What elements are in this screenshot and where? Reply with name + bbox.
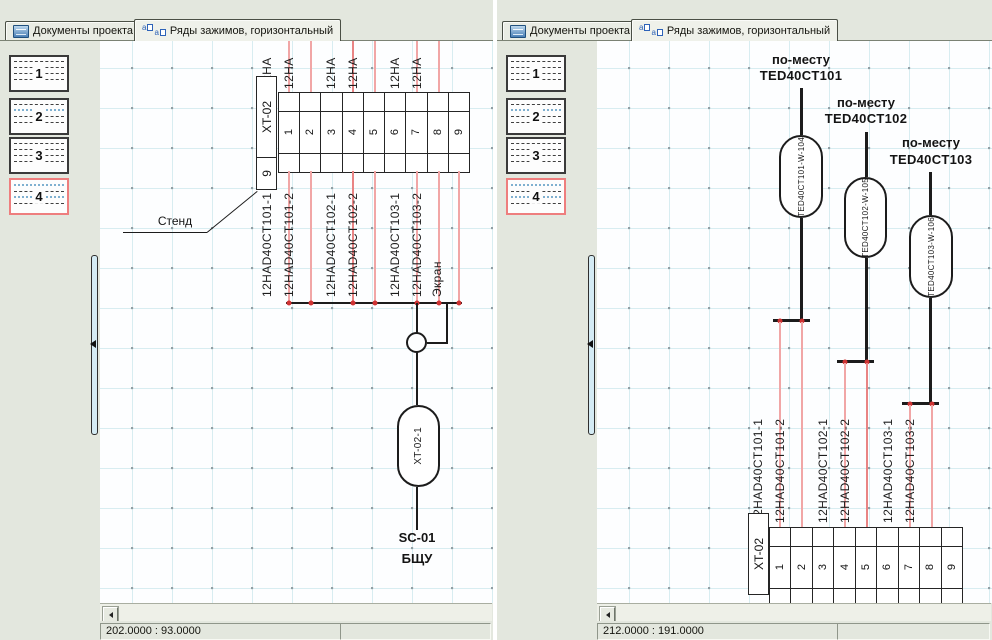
- page-number: 3: [529, 147, 542, 162]
- page-thumbnail-3[interactable]: 3: [9, 137, 69, 174]
- wire-label[interactable]: 12HAD40CT103-1: [882, 419, 895, 523]
- junction-dot: [351, 301, 356, 306]
- leader-line: [123, 232, 207, 233]
- status-bar: 212.0000 : 191.0000: [597, 621, 992, 640]
- link-line[interactable]: [416, 303, 418, 405]
- wire-label[interactable]: 12HAD40CT103-2: [904, 419, 917, 523]
- leader-line: [207, 191, 258, 233]
- editor-panel-left: Документы проекта aa Ряды зажимов, гориз…: [0, 0, 493, 640]
- terminal-block-label[interactable]: XT-02: [748, 513, 769, 595]
- cable-marker[interactable]: TED40CT102-W-105: [844, 177, 887, 258]
- terminal-wire[interactable]: [310, 171, 312, 303]
- tab-label: Ряды зажимов, горизонтальный: [667, 25, 830, 37]
- page-thumbnail-3[interactable]: 3: [506, 137, 566, 174]
- sensor-location[interactable]: по-месту: [755, 52, 847, 67]
- junction-dot: [437, 301, 442, 306]
- wire-label[interactable]: 12HAD40CT102-1: [817, 419, 830, 523]
- tab-terminal-rows[interactable]: aa Ряды зажимов, горизонтальный: [631, 19, 838, 41]
- cable-line[interactable]: [865, 258, 868, 363]
- scroll-left-button[interactable]: [600, 607, 615, 622]
- wire-label[interactable]: 12HAD40CT101-2: [283, 193, 296, 297]
- junction-dot: [457, 301, 462, 306]
- sensor-tag[interactable]: TED40CT101: [755, 68, 847, 83]
- page-number: 2: [32, 108, 45, 123]
- wire-label[interactable]: 12HA: [283, 57, 296, 89]
- note-label[interactable]: Стенд: [140, 214, 210, 228]
- status-field-empty: [340, 623, 491, 640]
- terminal-wire[interactable]: [931, 405, 933, 527]
- page-number: 4: [32, 188, 45, 203]
- schematic-canvas-right[interactable]: по-месту TED40CT101 TED40CT101-W-104 12H…: [597, 41, 992, 603]
- cursor-coordinates: 202.0000 : 93.0000: [100, 623, 344, 640]
- collapse-left-arrow-icon[interactable]: [587, 340, 593, 348]
- cable-line[interactable]: [800, 218, 803, 322]
- wire-label[interactable]: 12HA: [389, 57, 402, 89]
- collapse-left-arrow-icon[interactable]: [90, 340, 96, 348]
- horizontal-scrollbar[interactable]: [597, 603, 991, 621]
- terminal-rows-icon: aa: [142, 24, 166, 37]
- status-bar: 202.0000 : 93.0000: [100, 621, 493, 640]
- page-thumbnails-sidebar: 1 2 3 4: [0, 41, 100, 640]
- shield-circle-symbol[interactable]: [406, 332, 427, 353]
- wire-label[interactable]: Экран: [431, 261, 444, 297]
- wire-label[interactable]: 12HAD40CT101-1: [261, 193, 274, 297]
- cursor-coordinates: 212.0000 : 191.0000: [597, 623, 841, 640]
- cable-line[interactable]: [800, 88, 803, 135]
- sensor-tag[interactable]: TED40CT103: [885, 152, 977, 167]
- wire-label[interactable]: 12HAD40CT101-2: [774, 419, 787, 523]
- link-marker[interactable]: XT-02-1: [397, 405, 440, 487]
- page-number: 1: [32, 65, 45, 80]
- tab-label: Ряды зажимов, горизонтальный: [170, 25, 333, 37]
- wire-label[interactable]: 12HAD40CT103-2: [411, 193, 424, 297]
- wire-label[interactable]: 12HAD40CT102-2: [839, 419, 852, 523]
- tab-label: Документы проекта: [530, 25, 630, 37]
- page-thumbnail-1[interactable]: 1: [506, 55, 566, 92]
- shield-drop-line[interactable]: [446, 303, 448, 344]
- cable-line[interactable]: [865, 132, 868, 177]
- tab-bar: Документы проекта aa Ряды зажимов, гориз…: [0, 0, 493, 41]
- page-number: 2: [529, 108, 542, 123]
- terminal-wire[interactable]: [374, 171, 376, 303]
- wire-label[interactable]: 12HA: [325, 57, 338, 89]
- tab-project-documents[interactable]: Документы проекта: [5, 21, 141, 40]
- shield-wire[interactable]: [458, 171, 460, 303]
- scroll-left-arrow-icon: [109, 612, 113, 618]
- incoming-wire[interactable]: [438, 41, 440, 92]
- link-line[interactable]: [416, 487, 418, 530]
- destination-label[interactable]: SC-01: [382, 530, 452, 545]
- wire-label[interactable]: 12HAD40CT103-1: [389, 193, 402, 297]
- terminal-wire[interactable]: [866, 363, 868, 527]
- tab-terminal-rows[interactable]: aa Ряды зажимов, горизонтальный: [134, 19, 341, 41]
- incoming-wire[interactable]: [374, 41, 376, 92]
- terminal-rows-icon: aa: [639, 24, 663, 37]
- terminal-block-label[interactable]: XT-02 9: [256, 76, 277, 190]
- destination-label[interactable]: БЩУ: [382, 551, 452, 566]
- sensor-tag[interactable]: TED40CT102: [820, 111, 912, 126]
- page-number: 3: [32, 147, 45, 162]
- junction-dot: [373, 301, 378, 306]
- page-thumbnail-2[interactable]: 2: [506, 98, 566, 135]
- sensor-location[interactable]: по-месту: [885, 135, 977, 150]
- tab-label: Документы проекта: [33, 25, 133, 37]
- page-thumbnail-2[interactable]: 2: [9, 98, 69, 135]
- wire-label[interactable]: 12HAD40CT101-1: [752, 419, 765, 523]
- page-thumbnail-4-selected[interactable]: 4: [9, 178, 69, 215]
- page-thumbnails-sidebar: 1 2 3 4: [497, 41, 597, 640]
- wire-label[interactable]: 12HAD40CT102-2: [347, 193, 360, 297]
- wire-label[interactable]: 12HA: [347, 57, 360, 89]
- junction-dot: [287, 301, 292, 306]
- terminal-wire[interactable]: [801, 322, 803, 527]
- cable-line[interactable]: [929, 298, 932, 405]
- page-thumbnail-1[interactable]: 1: [9, 55, 69, 92]
- status-field-empty: [837, 623, 990, 640]
- horizontal-scrollbar[interactable]: [100, 603, 492, 621]
- terminal-block[interactable]: 1 2 3 4 5 6 7 8 9: [278, 92, 470, 173]
- sensor-location[interactable]: по-месту: [820, 95, 912, 110]
- shield-branch-line[interactable]: [427, 342, 448, 344]
- tab-project-documents[interactable]: Документы проекта: [502, 21, 638, 40]
- wire-label[interactable]: 12HA: [411, 57, 424, 89]
- documents-icon: [13, 25, 29, 38]
- documents-icon: [510, 25, 526, 38]
- scroll-left-arrow-icon: [606, 612, 610, 618]
- tab-bar: Документы проекта aa Ряды зажимов, гориз…: [497, 0, 992, 41]
- wire-label[interactable]: 12HAD40CT102-1: [325, 193, 338, 297]
- scroll-left-button[interactable]: [103, 607, 118, 622]
- incoming-wire[interactable]: [310, 41, 312, 92]
- cable-marker[interactable]: TED40CT101-W-104: [779, 135, 823, 218]
- junction-dot: [309, 301, 314, 306]
- cable-line[interactable]: [929, 172, 932, 215]
- cable-marker[interactable]: TED40CT103-W-106: [909, 215, 953, 298]
- editor-panel-right: Документы проекта aa Ряды зажимов, гориз…: [497, 0, 992, 640]
- page-number: 4: [529, 188, 542, 203]
- page-thumbnail-4-selected[interactable]: 4: [506, 178, 566, 215]
- schematic-canvas-left[interactable]: 12HA 12HA 12HA 12HA 12HA 12HA XT-02 9 1 …: [100, 41, 493, 603]
- terminal-block[interactable]: 1 2 3 4 5 6 7 8 9: [769, 527, 963, 603]
- page-number: 1: [529, 65, 542, 80]
